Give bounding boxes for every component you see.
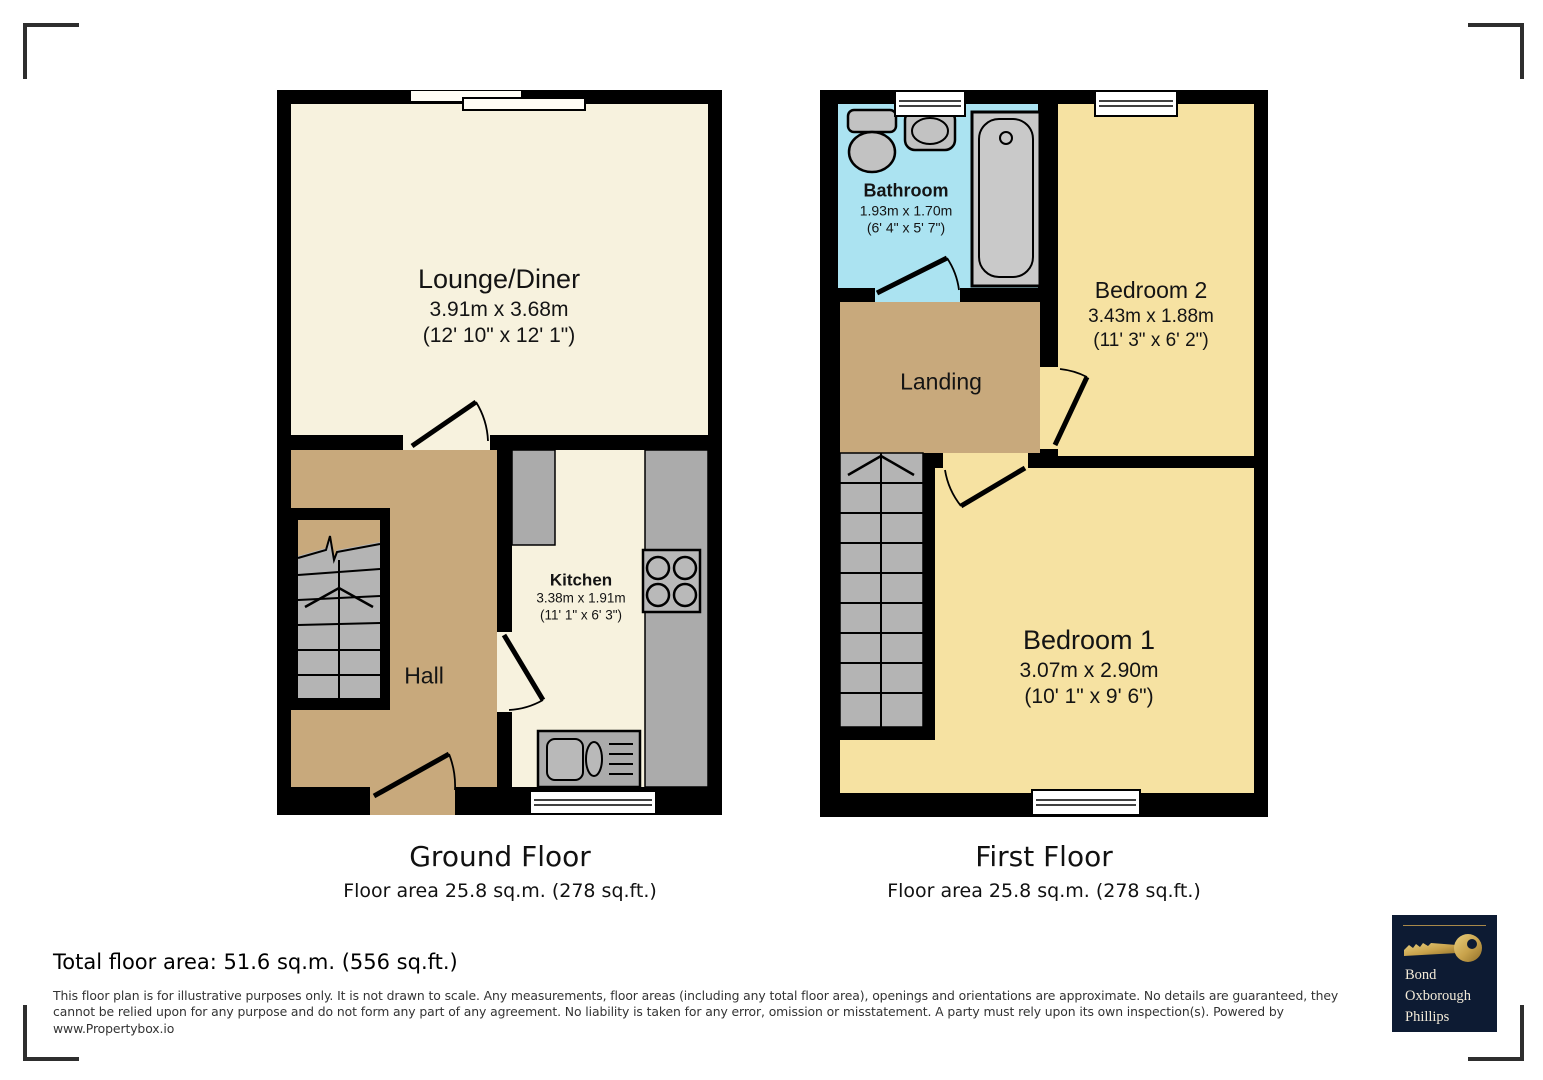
- logo-wordmark: Bond Oxborough Phillips: [1405, 965, 1471, 1028]
- ground-floor-drawing: [277, 90, 722, 815]
- room-metric: 1.93m x 1.70m: [860, 202, 953, 220]
- stairs-ground: [291, 508, 390, 710]
- bedroom2-window-icon: [1095, 91, 1177, 116]
- room-name: Hall: [404, 662, 444, 691]
- disclaimer-text: This floor plan is for illustrative purp…: [53, 988, 1343, 1037]
- logo-line: Bond: [1405, 965, 1471, 986]
- floorplan-page: Lounge/Diner 3.91m x 3.68m (12' 10" x 12…: [0, 0, 1543, 1080]
- kitchen-label: Kitchen 3.38m x 1.91m (11' 1" x 6' 3"): [536, 570, 625, 625]
- kitchen-counter-right: [645, 450, 708, 787]
- landing-label: Landing: [900, 368, 982, 397]
- sink-icon: [538, 731, 640, 787]
- ground-floor-title: Ground Floor Floor area 25.8 sq.m. (278 …: [343, 840, 657, 902]
- crop-mark-top-right-icon: [1468, 23, 1524, 79]
- room-name: Bathroom: [860, 179, 953, 202]
- bedroom1-label: Bedroom 1 3.07m x 2.90m (10' 1" x 9' 6"): [1020, 624, 1159, 710]
- lounge-label: Lounge/Diner 3.91m x 3.68m (12' 10" x 12…: [418, 263, 580, 349]
- crop-mark-top-left-icon: [23, 23, 79, 79]
- room-metric: 3.91m x 3.68m: [418, 297, 580, 323]
- room-imperial: (11' 1" x 6' 3"): [536, 608, 625, 625]
- room-metric: 3.43m x 1.88m: [1088, 305, 1214, 329]
- room-metric: 3.07m x 2.90m: [1020, 658, 1159, 684]
- first-floor-title: First Floor Floor area 25.8 sq.m. (278 s…: [887, 840, 1201, 902]
- floor-title-text: Ground Floor: [343, 840, 657, 873]
- room-imperial: (11' 3" x 6' 2"): [1088, 328, 1214, 352]
- bathroom-label: Bathroom 1.93m x 1.70m (6' 4" x 5' 7"): [860, 179, 953, 237]
- total-floor-area: Total floor area: 51.6 sq.m. (556 sq.ft.…: [53, 950, 458, 974]
- room-name: Kitchen: [536, 570, 625, 591]
- room-name: Bedroom 2: [1088, 276, 1214, 305]
- floor-area-text: Floor area 25.8 sq.m. (278 sq.ft.): [887, 880, 1201, 902]
- floor-title-text: First Floor: [887, 840, 1201, 873]
- kitchen-counter-left: [512, 450, 555, 545]
- bath-icon: [972, 112, 1040, 286]
- stairs-first: [840, 453, 923, 727]
- room-name: Landing: [900, 368, 982, 397]
- key-icon: [1400, 933, 1490, 967]
- room-name: Lounge/Diner: [418, 263, 580, 297]
- logo-line: Oxborough: [1405, 986, 1471, 1007]
- bedroom1-window-icon: [1032, 790, 1140, 815]
- logo-line: Phillips: [1405, 1007, 1471, 1028]
- room-imperial: (6' 4" x 5' 7"): [860, 219, 953, 237]
- room-metric: 3.38m x 1.91m: [536, 591, 625, 608]
- kitchen-window-icon: [530, 791, 656, 814]
- bathroom-window-icon: [895, 91, 965, 116]
- room-name: Bedroom 1: [1020, 624, 1159, 658]
- agent-logo: Bond Oxborough Phillips: [1392, 915, 1497, 1032]
- bedroom2-label: Bedroom 2 3.43m x 1.88m (11' 3" x 6' 2"): [1088, 276, 1214, 352]
- floor-area-text: Floor area 25.8 sq.m. (278 sq.ft.): [343, 880, 657, 902]
- hob-icon: [643, 550, 700, 612]
- room-imperial: (12' 10" x 12' 1"): [418, 323, 580, 349]
- toilet-icon: [848, 110, 896, 172]
- ground-floor-plan: [277, 90, 722, 815]
- room-imperial: (10' 1" x 9' 6"): [1020, 684, 1159, 710]
- hall-label: Hall: [404, 662, 444, 691]
- logo-gold-line: [1403, 925, 1486, 926]
